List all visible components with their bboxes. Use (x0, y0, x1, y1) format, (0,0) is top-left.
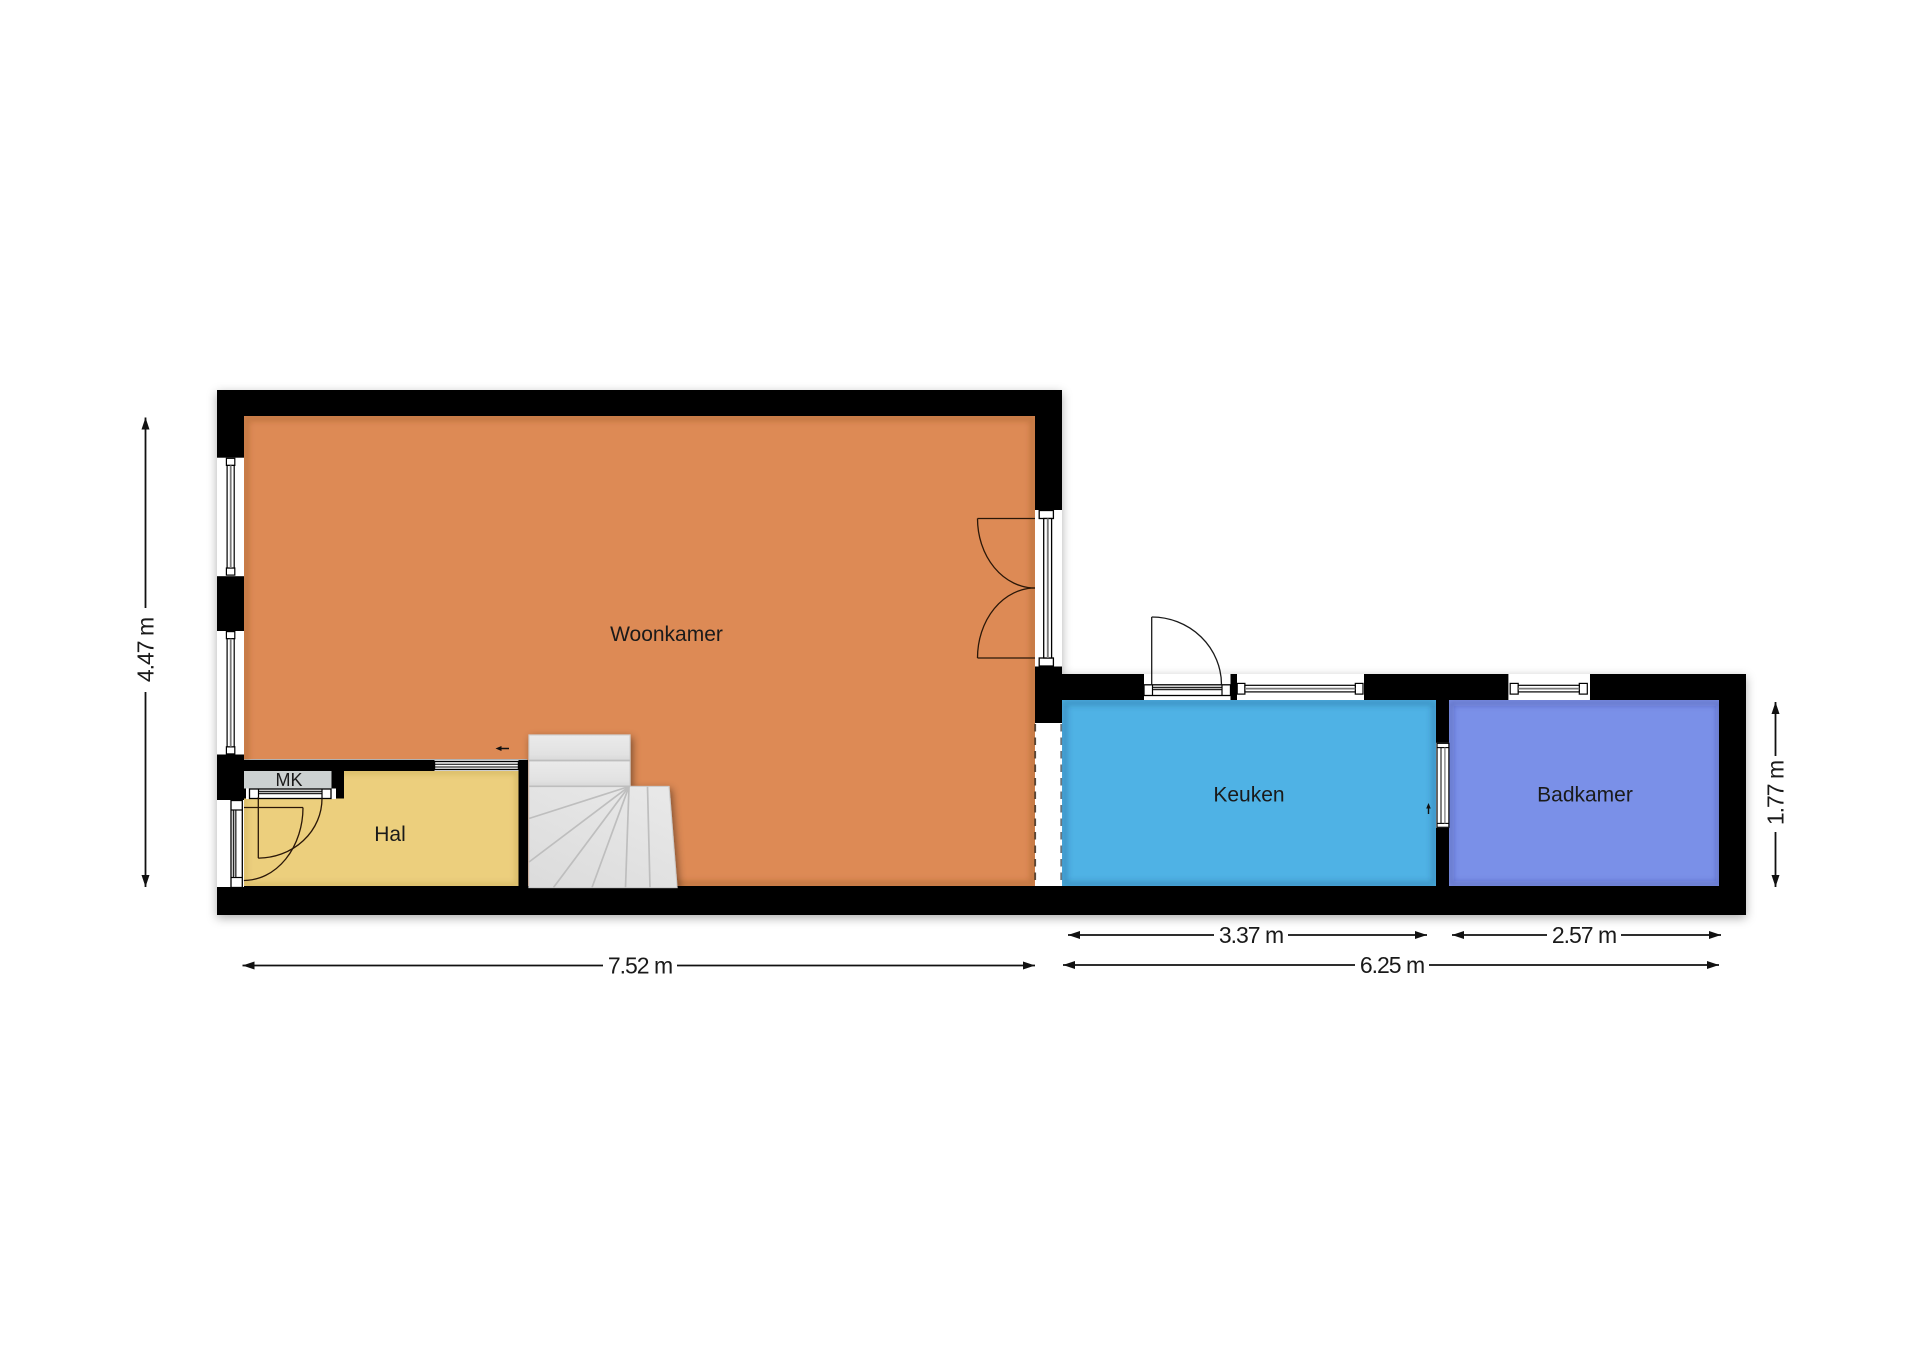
svg-text:Keuken: Keuken (1213, 784, 1284, 807)
svg-text:4.47 m: 4.47 m (133, 618, 159, 682)
svg-text:Hal: Hal (374, 823, 406, 846)
svg-text:3.37 m: 3.37 m (1219, 922, 1283, 948)
svg-text:6.25 m: 6.25 m (1360, 952, 1424, 978)
svg-text:2.57 m: 2.57 m (1552, 922, 1616, 948)
svg-text:1.77 m: 1.77 m (1763, 761, 1789, 825)
svg-text:MK: MK (276, 770, 303, 790)
svg-text:7.52 m: 7.52 m (608, 953, 672, 979)
svg-text:Badkamer: Badkamer (1537, 784, 1633, 807)
svg-text:Woonkamer: Woonkamer (610, 623, 723, 646)
